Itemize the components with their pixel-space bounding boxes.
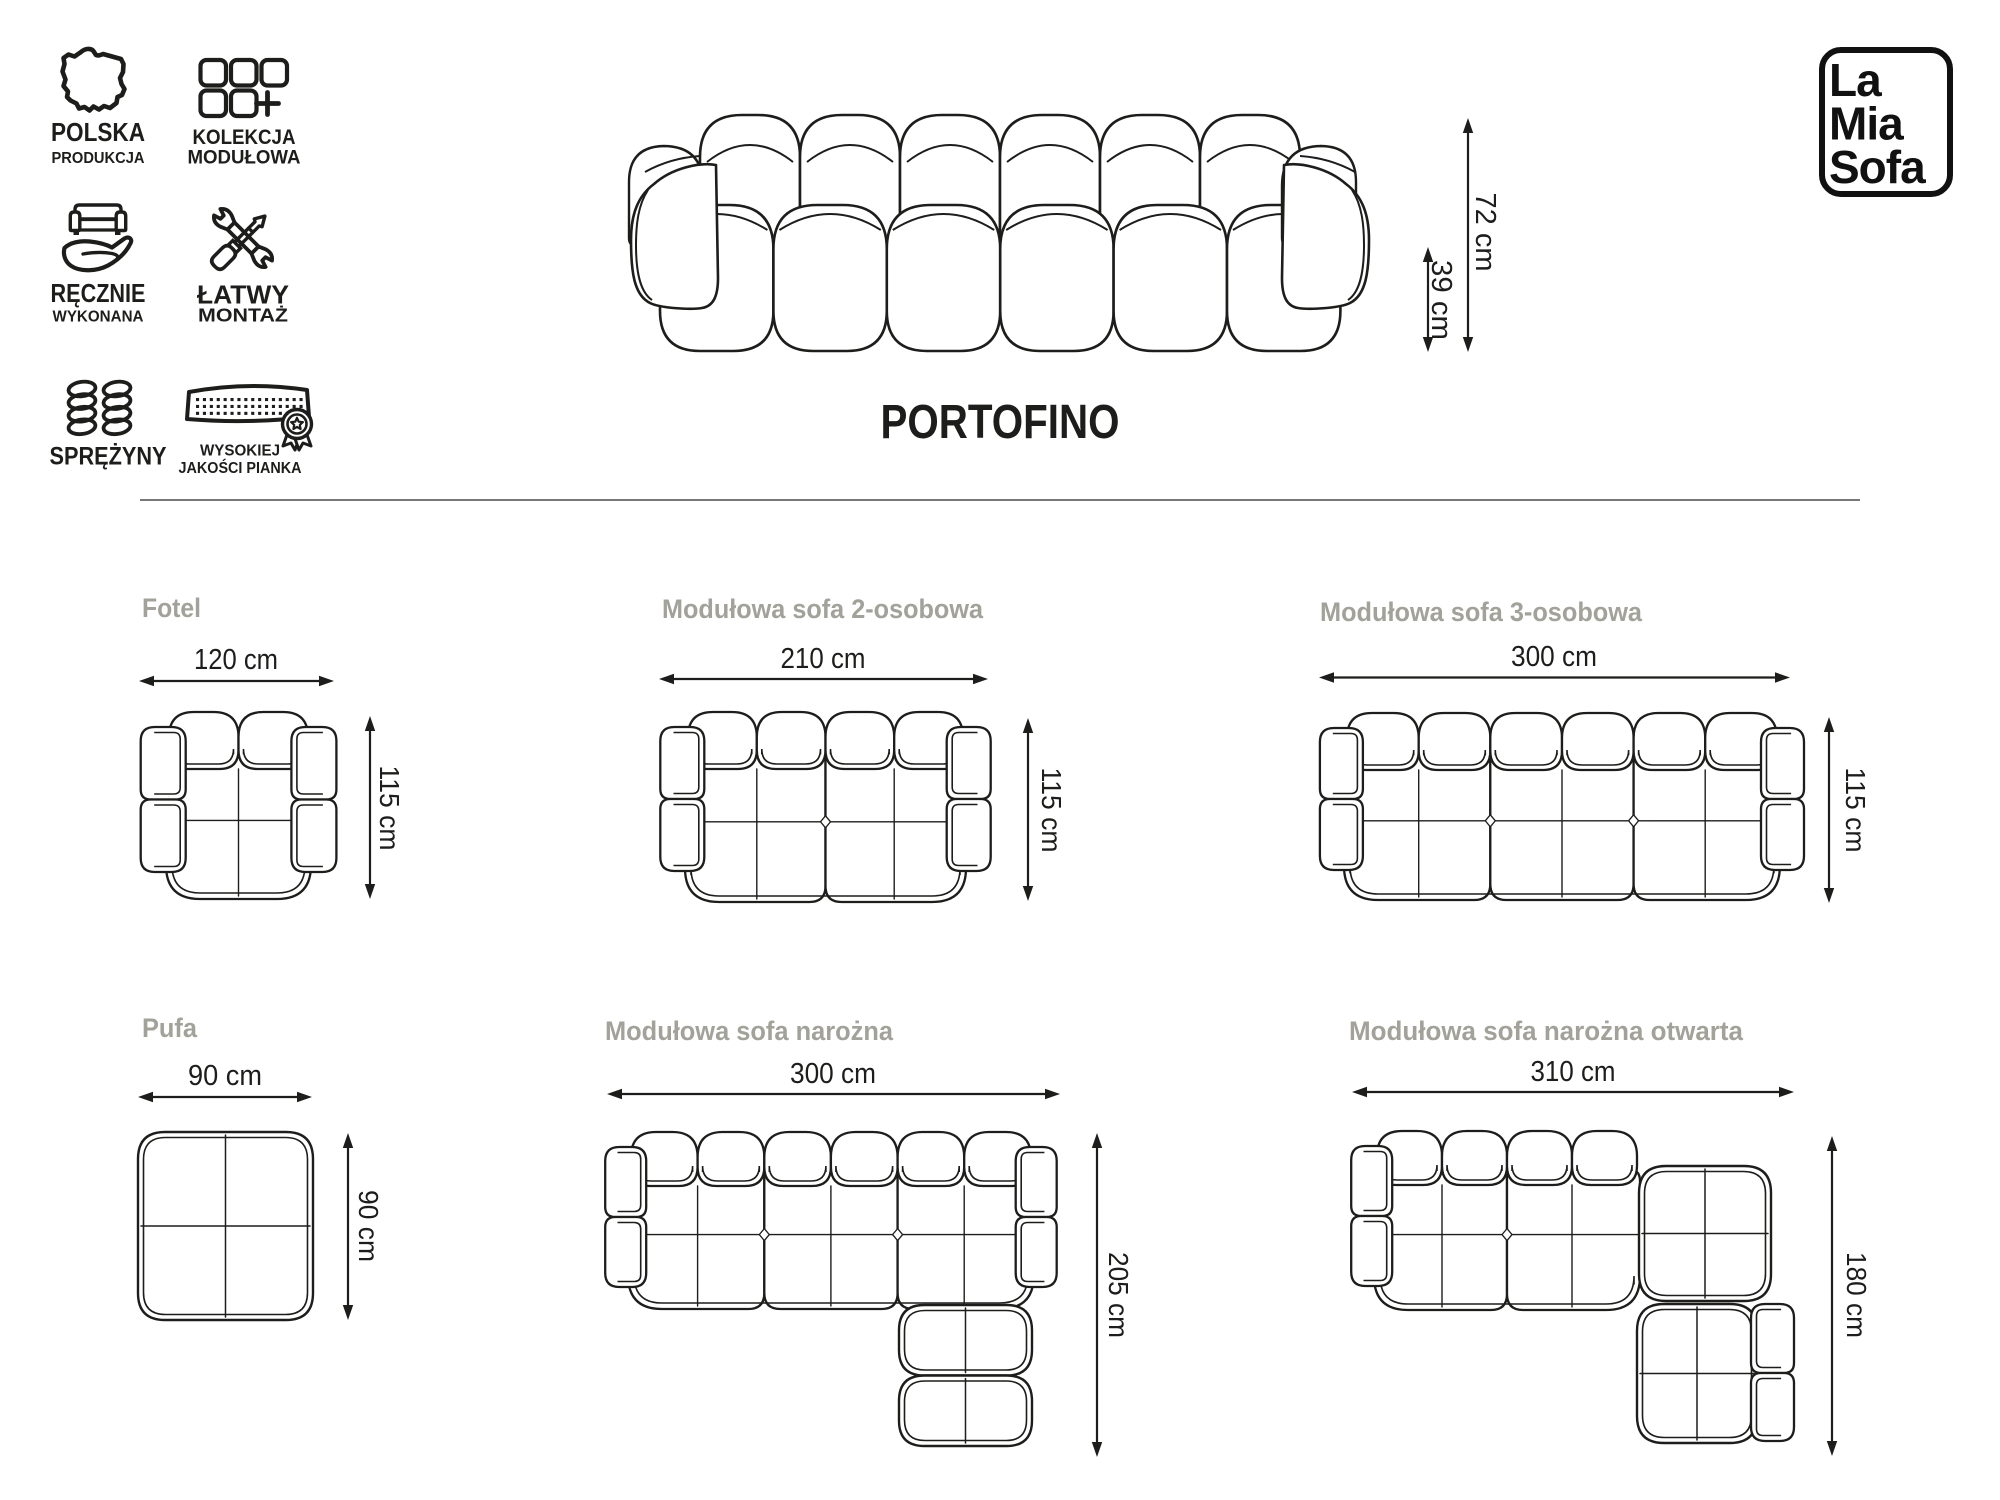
svg-text:115 cm: 115 cm bbox=[1036, 768, 1067, 853]
svg-text:120 cm: 120 cm bbox=[194, 644, 278, 676]
svg-text:Modułowa sofa 3-osobowa: Modułowa sofa 3-osobowa bbox=[1320, 597, 1643, 627]
svg-text:115 cm: 115 cm bbox=[374, 766, 405, 851]
svg-text:POLSKA: POLSKA bbox=[51, 117, 145, 147]
svg-text:90 cm: 90 cm bbox=[353, 1190, 384, 1262]
svg-text:WYKONANA: WYKONANA bbox=[53, 309, 144, 326]
svg-text:Pufa: Pufa bbox=[142, 1013, 198, 1043]
svg-text:300 cm: 300 cm bbox=[1511, 641, 1597, 673]
svg-text:115 cm: 115 cm bbox=[1840, 768, 1871, 853]
svg-text:SPRĘŻYNY: SPRĘŻYNY bbox=[50, 443, 167, 471]
svg-text:Fotel: Fotel bbox=[142, 593, 201, 623]
svg-text:310 cm: 310 cm bbox=[1531, 1056, 1616, 1088]
svg-text:KOLEKCJA: KOLEKCJA bbox=[193, 126, 296, 149]
svg-text:Sofa: Sofa bbox=[1829, 141, 1926, 193]
svg-text:Modułowa sofa narożna otwarta: Modułowa sofa narożna otwarta bbox=[1349, 1016, 1744, 1046]
svg-text:39 cm: 39 cm bbox=[1425, 260, 1457, 340]
svg-text:180 cm: 180 cm bbox=[1841, 1252, 1872, 1338]
svg-text:300 cm: 300 cm bbox=[790, 1058, 876, 1090]
svg-text:90 cm: 90 cm bbox=[188, 1060, 262, 1092]
svg-text:72 cm: 72 cm bbox=[1469, 193, 1501, 272]
svg-text:RĘCZNIE: RĘCZNIE bbox=[51, 278, 146, 308]
svg-text:JAKOŚCI PIANKA: JAKOŚCI PIANKA bbox=[179, 458, 302, 477]
svg-text:WYSOKIEJ: WYSOKIEJ bbox=[200, 443, 280, 460]
svg-text:Modułowa sofa narożna: Modułowa sofa narożna bbox=[605, 1016, 894, 1046]
svg-text:MONTAŻ: MONTAŻ bbox=[198, 306, 288, 326]
svg-text:MODUŁOWA: MODUŁOWA bbox=[188, 148, 301, 169]
svg-text:205 cm: 205 cm bbox=[1103, 1252, 1134, 1338]
svg-text:Modułowa sofa 2-osobowa: Modułowa sofa 2-osobowa bbox=[662, 594, 984, 624]
svg-text:210 cm: 210 cm bbox=[781, 643, 866, 675]
svg-text:PORTOFINO: PORTOFINO bbox=[881, 396, 1120, 449]
svg-text:PRODUKCJA: PRODUKCJA bbox=[52, 150, 145, 167]
